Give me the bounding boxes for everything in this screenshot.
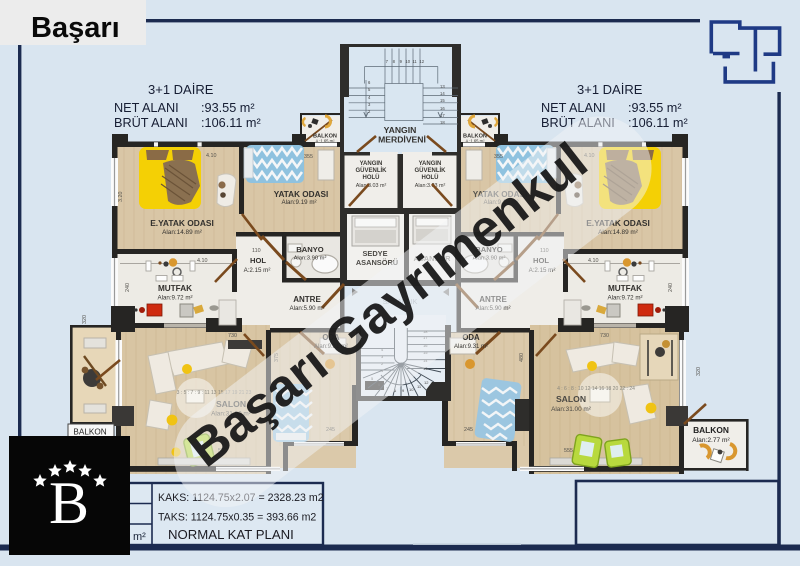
svg-text:BRÜT ALANI: BRÜT ALANI: [114, 116, 188, 130]
svg-text:SALON: SALON: [556, 394, 586, 404]
svg-text:A :1.65 m²: A :1.65 m²: [465, 139, 485, 144]
svg-text:11: 11: [412, 59, 417, 64]
svg-text:Alan:9.72 m²: Alan:9.72 m²: [607, 295, 642, 302]
svg-text:NORMAL KAT PLANI: NORMAL KAT PLANI: [168, 527, 294, 542]
svg-text:320: 320: [82, 315, 88, 324]
svg-text:NET ALANI: NET ALANI: [541, 101, 606, 115]
svg-text:BALKON: BALKON: [73, 428, 106, 437]
svg-text:A:2.15 m²: A:2.15 m²: [244, 267, 271, 274]
svg-text:Alan:3.03 m²: Alan:3.03 m²: [415, 183, 446, 189]
svg-text:TAKS: 1124.75x0.35 = 393.66 m2: TAKS: 1124.75x0.35 = 393.66 m2: [158, 512, 316, 524]
svg-text:16: 16: [440, 106, 445, 111]
svg-text:ANTRE: ANTRE: [293, 295, 321, 304]
svg-text:17: 17: [440, 113, 445, 118]
svg-text:SEDYE: SEDYE: [362, 249, 387, 258]
svg-text:4 : 6 : 8 : 10 12 14 16 18 20: 4 : 6 : 8 : 10 12 14 16 18 20 22 : 24: [557, 386, 635, 392]
svg-text:3+1 DAİRE: 3+1 DAİRE: [577, 82, 643, 97]
svg-text:GÜVENLİK: GÜVENLİK: [414, 167, 446, 174]
svg-text:15: 15: [440, 98, 445, 103]
svg-text:MERDİVENİ: MERDİVENİ: [378, 135, 426, 145]
svg-text:110: 110: [252, 248, 261, 254]
svg-text:YATAK ODASI: YATAK ODASI: [274, 190, 328, 199]
svg-text:245: 245: [464, 427, 473, 433]
svg-text::93.55 m²: :93.55 m²: [201, 101, 255, 115]
svg-text:730: 730: [228, 333, 237, 339]
svg-text:A :1.65 m²: A :1.65 m²: [315, 139, 335, 144]
svg-text:Alan:9.72 m²: Alan:9.72 m²: [157, 295, 192, 302]
svg-text:Alan:14.89 m²: Alan:14.89 m²: [162, 229, 202, 236]
svg-text:HOLÜ: HOLÜ: [363, 174, 380, 181]
svg-text:Alan:9.31 m²: Alan:9.31 m²: [454, 344, 488, 350]
svg-text:18: 18: [440, 120, 445, 125]
svg-text:NET ALANI: NET ALANI: [114, 101, 179, 115]
svg-text:YANGIN: YANGIN: [360, 161, 383, 167]
svg-text:13: 13: [440, 84, 445, 89]
svg-text:320: 320: [696, 367, 702, 376]
svg-text:Başarı: Başarı: [31, 12, 120, 44]
svg-text:Alan:5.90 m²: Alan:5.90 m²: [289, 305, 324, 312]
svg-text:12: 12: [424, 380, 429, 385]
svg-text:YANGIN: YANGIN: [384, 125, 417, 135]
svg-text:Alan:2.77 m²: Alan:2.77 m²: [692, 437, 730, 444]
svg-text:10: 10: [405, 59, 410, 64]
svg-text:355: 355: [304, 154, 313, 160]
svg-text:240: 240: [668, 283, 674, 292]
svg-text:730: 730: [600, 333, 609, 339]
svg-text:4.10: 4.10: [206, 153, 217, 159]
svg-text:GÜVENLİK: GÜVENLİK: [355, 167, 387, 174]
svg-text:BALKON: BALKON: [693, 425, 729, 435]
svg-text:HOLÜ: HOLÜ: [422, 174, 439, 181]
svg-text:m²: m²: [133, 531, 146, 543]
svg-text:14: 14: [440, 91, 445, 96]
svg-text:3.20: 3.20: [118, 192, 124, 203]
svg-text:MUTFAK: MUTFAK: [158, 284, 192, 293]
svg-text:Alan:9.19 m²: Alan:9.19 m²: [281, 199, 316, 206]
svg-text:3+1 DAİRE: 3+1 DAİRE: [148, 82, 214, 97]
svg-text:YANGIN: YANGIN: [419, 161, 442, 167]
svg-text:10: 10: [409, 387, 414, 392]
svg-text::93.55 m²: :93.55 m²: [628, 101, 682, 115]
svg-text:Alan:3.03 m²: Alan:3.03 m²: [356, 183, 387, 189]
svg-text:240: 240: [125, 283, 131, 292]
svg-text:555: 555: [564, 448, 573, 454]
svg-text:12: 12: [419, 59, 424, 64]
svg-text:4.10: 4.10: [588, 258, 599, 264]
svg-text:Alan:3.90 m²: Alan:3.90 m²: [294, 256, 327, 262]
svg-text::106.11 m²: :106.11 m²: [201, 116, 261, 130]
svg-text::106.11 m²: :106.11 m²: [628, 116, 688, 130]
svg-text:4.10: 4.10: [197, 258, 208, 264]
svg-text:E.YATAK ODASI: E.YATAK ODASI: [150, 218, 214, 228]
svg-text:MUTFAK: MUTFAK: [608, 284, 642, 293]
svg-text:B: B: [49, 470, 89, 536]
svg-text:480: 480: [519, 353, 525, 362]
svg-text:355: 355: [494, 154, 503, 160]
svg-text:BANYO: BANYO: [296, 245, 324, 254]
svg-text:Alan:31.00 m²: Alan:31.00 m²: [551, 406, 591, 413]
svg-text:HOL: HOL: [250, 256, 266, 265]
